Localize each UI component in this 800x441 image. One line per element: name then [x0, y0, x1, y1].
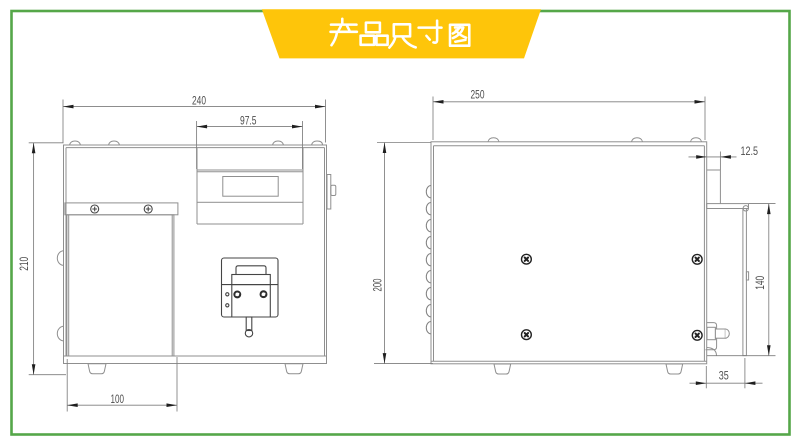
svg-text:97.5: 97.5	[240, 113, 257, 127]
svg-text:12.5: 12.5	[741, 144, 759, 158]
svg-text:240: 240	[192, 93, 206, 107]
svg-text:100: 100	[111, 392, 125, 406]
svg-text:35: 35	[719, 368, 729, 382]
svg-text:140: 140	[753, 276, 767, 290]
svg-text:250: 250	[471, 88, 485, 102]
svg-text:210: 210	[17, 257, 31, 271]
svg-text:200: 200	[370, 278, 384, 291]
